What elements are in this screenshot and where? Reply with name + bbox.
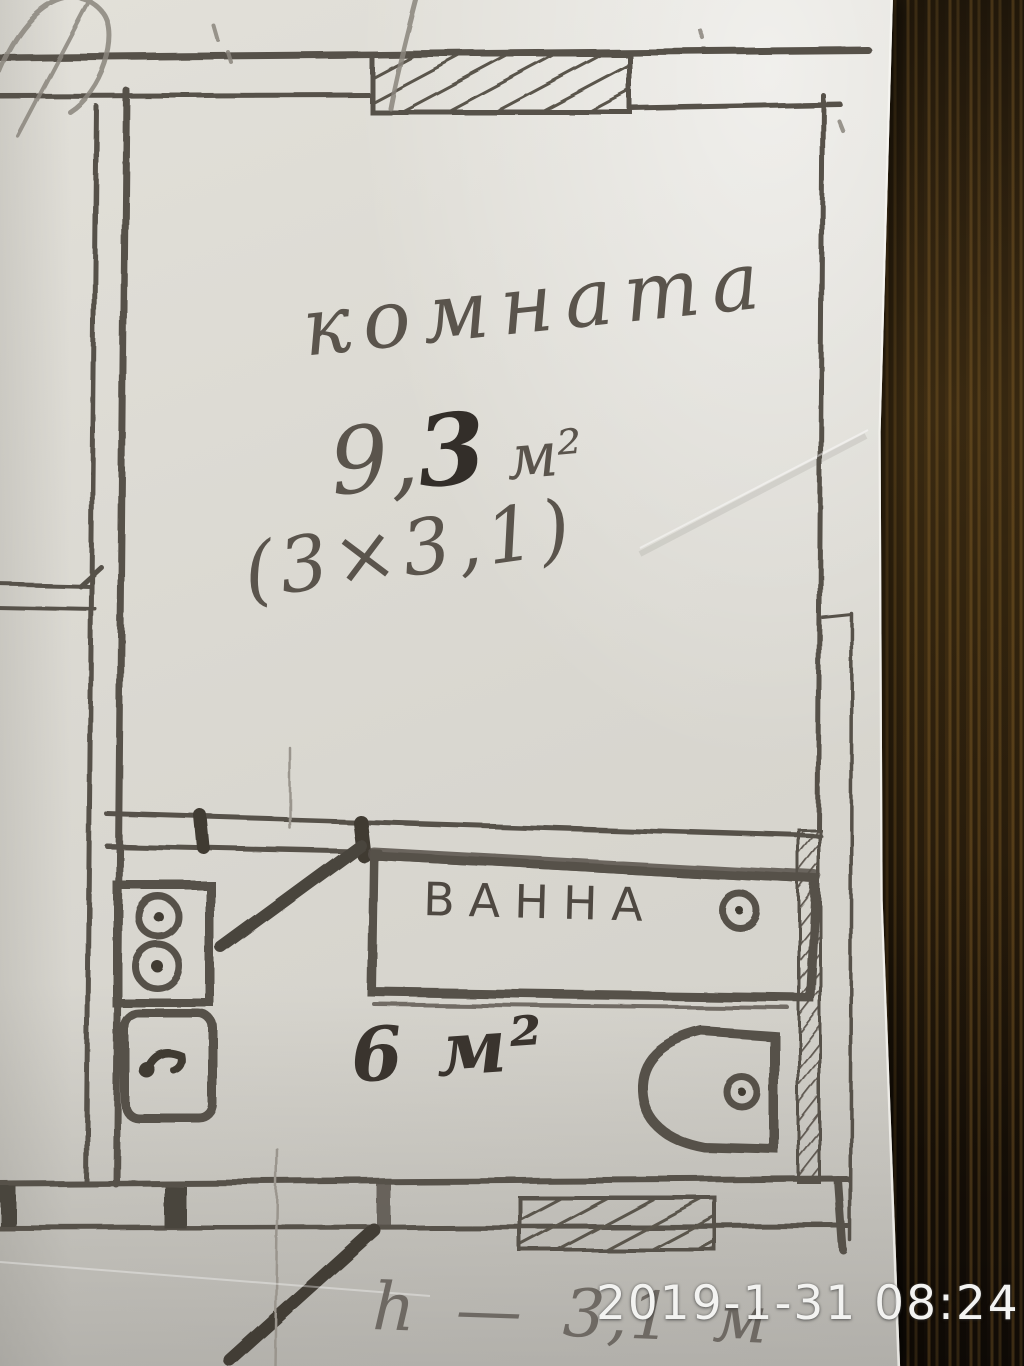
bathtub-drain — [722, 893, 756, 927]
right-wall — [799, 95, 852, 1240]
top-window-hatch — [372, 55, 630, 112]
room-area-unit: м² — [503, 415, 585, 494]
camera-timestamp: 2019-1-31 08:24 — [596, 1276, 1020, 1331]
cabinet — [125, 1014, 213, 1118]
paper-edge-highlight — [881, 0, 900, 1366]
floor-plan-drawing — [0, 0, 1024, 1366]
room-area-value-bold: 3 — [412, 390, 490, 511]
stove-burner-2 — [135, 944, 179, 988]
bathtub-label: ВАННА — [423, 872, 658, 932]
stove-burner-1 — [138, 896, 178, 936]
bottom-wall — [0, 1179, 848, 1250]
paper-creases — [0, 0, 900, 1366]
left-partition-stub — [0, 567, 101, 609]
stove — [117, 885, 210, 1003]
top-wall — [0, 50, 868, 112]
room-area-value: 9, — [326, 402, 423, 516]
paper-sheet: комната 9,3м² (3×3,1) ВАННА 6 м² h — 3,1… — [0, 0, 1024, 1366]
middle-wall — [107, 814, 820, 855]
photo-of-floorplan: комната 9,3м² (3×3,1) ВАННА 6 м² h — 3,1… — [0, 0, 1024, 1366]
washbasin — [642, 1031, 774, 1149]
paper-wrap: комната 9,3м² (3×3,1) ВАННА 6 м² h — 3,1… — [0, 0, 1024, 1366]
washbasin-drain — [727, 1077, 757, 1107]
bathroom-area-label: 6 м² — [348, 1000, 550, 1099]
bottom-window-hatch — [520, 1198, 715, 1250]
left-wall — [86, 90, 126, 1184]
